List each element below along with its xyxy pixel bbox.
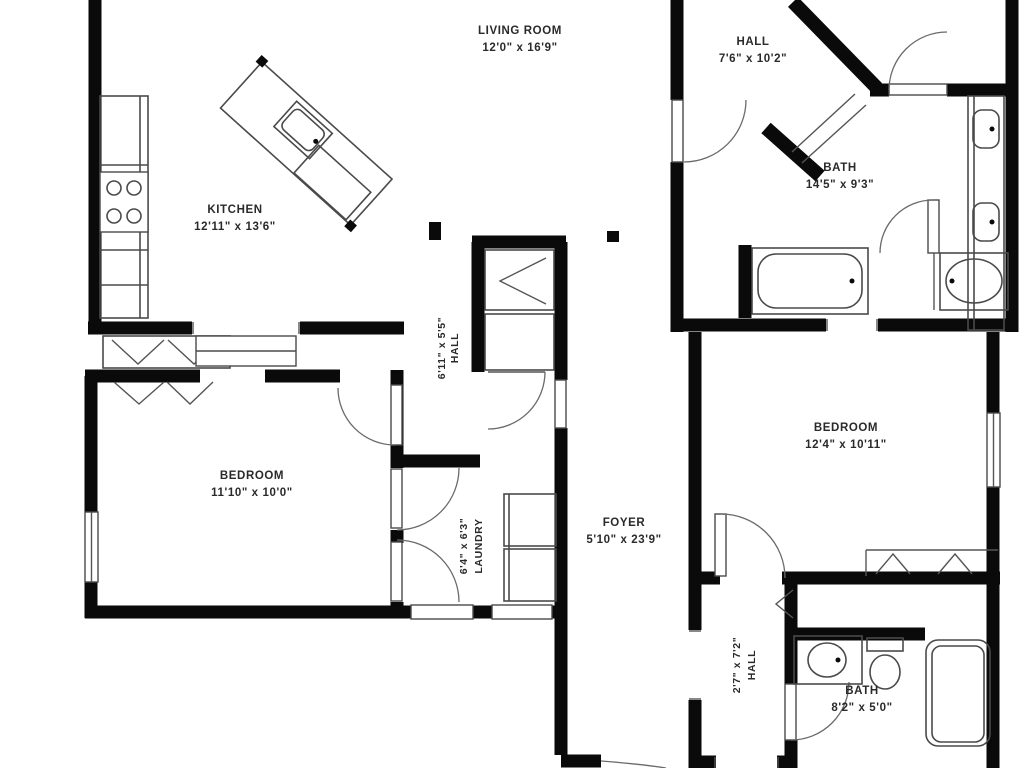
label-hall-bottom: 2'7" x 7'2" HALL (731, 637, 758, 694)
pass-through-counter (196, 336, 296, 366)
svg-text:8'2" x 5'0": 8'2" x 5'0" (831, 702, 892, 714)
window-bedroom-right (987, 413, 1000, 487)
label-foyer: FOYER 5'10" x 23'9" (586, 517, 661, 546)
doors (338, 32, 947, 768)
svg-text:HALL: HALL (736, 36, 769, 48)
label-laundry: 6'4" x 6'3" LAUNDRY (458, 518, 485, 575)
svg-text:7'6" x 10'2": 7'6" x 10'2" (719, 53, 787, 65)
svg-text:5'10" x 23'9": 5'10" x 23'9" (586, 534, 661, 546)
stove-icon (100, 172, 148, 232)
label-bedroom-left: BEDROOM 11'10" x 10'0" (211, 470, 293, 499)
bathtub-bottom-icon (926, 640, 990, 746)
door-hall-top-entry (672, 100, 746, 162)
svg-text:14'5" x 9'3": 14'5" x 9'3" (806, 179, 874, 191)
closets (103, 250, 998, 576)
label-hall-top: HALL 7'6" x 10'2" (719, 36, 787, 65)
kitchen-counter (100, 96, 148, 318)
bedroom-left-closet (114, 382, 213, 404)
door-hall-closet (488, 372, 545, 429)
svg-text:LAUNDRY: LAUNDRY (473, 518, 485, 573)
double-vanity (968, 96, 1004, 330)
toilet-icon (867, 638, 903, 689)
door-foyer-module (555, 380, 566, 428)
door-laundry-lower (391, 540, 459, 602)
door-laundry-upper (391, 468, 459, 530)
door-bedroom-left (338, 385, 402, 445)
svg-text:HALL: HALL (746, 650, 758, 680)
svg-text:12'0" x 16'9": 12'0" x 16'9" (482, 42, 557, 54)
floor-plan-page: LIVING ROOM 12'0" x 16'9" HALL 7'6" x 10… (0, 0, 1024, 768)
door-closet-top-right (889, 32, 947, 95)
svg-text:LIVING ROOM: LIVING ROOM (478, 25, 562, 37)
svg-text:11'10" x 10'0": 11'10" x 10'0" (211, 487, 293, 499)
label-living-room: LIVING ROOM 12'0" x 16'9" (478, 25, 562, 54)
svg-text:BATH: BATH (823, 162, 857, 174)
svg-text:12'4" x 10'11": 12'4" x 10'11" (805, 439, 887, 451)
svg-text:BATH: BATH (845, 685, 879, 697)
door-bath-top (880, 200, 939, 253)
vanity-sink-icon (794, 636, 862, 684)
svg-text:6'11" x 5'5": 6'11" x 5'5" (436, 317, 448, 379)
svg-text:FOYER: FOYER (603, 517, 646, 529)
svg-text:6'4" x 6'3": 6'4" x 6'3" (458, 518, 470, 575)
bathtub-icon (752, 248, 868, 314)
window-bedroom-left (85, 512, 98, 582)
label-hall-center: 6'11" x 5'5" HALL (436, 317, 461, 379)
svg-text:BEDROOM: BEDROOM (220, 470, 284, 482)
hall-closet-shelves (485, 250, 554, 370)
bath-top-fixtures (752, 96, 1008, 330)
svg-text:2'7" x 7'2": 2'7" x 7'2" (731, 637, 743, 694)
svg-text:BEDROOM: BEDROOM (814, 422, 878, 434)
door-bedroom-right (715, 514, 785, 578)
washer-dryer-icon (504, 494, 556, 601)
svg-text:HALL: HALL (449, 333, 461, 363)
floor-plan-drawing: LIVING ROOM 12'0" x 16'9" HALL 7'6" x 10… (0, 0, 1024, 768)
soaking-tub-icon (934, 253, 1008, 310)
label-bedroom-right: BEDROOM 12'4" x 10'11" (805, 422, 887, 451)
door-entry-foyer (601, 761, 666, 768)
svg-text:12'11" x 13'6": 12'11" x 13'6" (194, 221, 276, 233)
svg-text:KITCHEN: KITCHEN (207, 204, 262, 216)
label-kitchen: KITCHEN 12'11" x 13'6" (194, 204, 276, 233)
walls (85, 0, 1018, 768)
